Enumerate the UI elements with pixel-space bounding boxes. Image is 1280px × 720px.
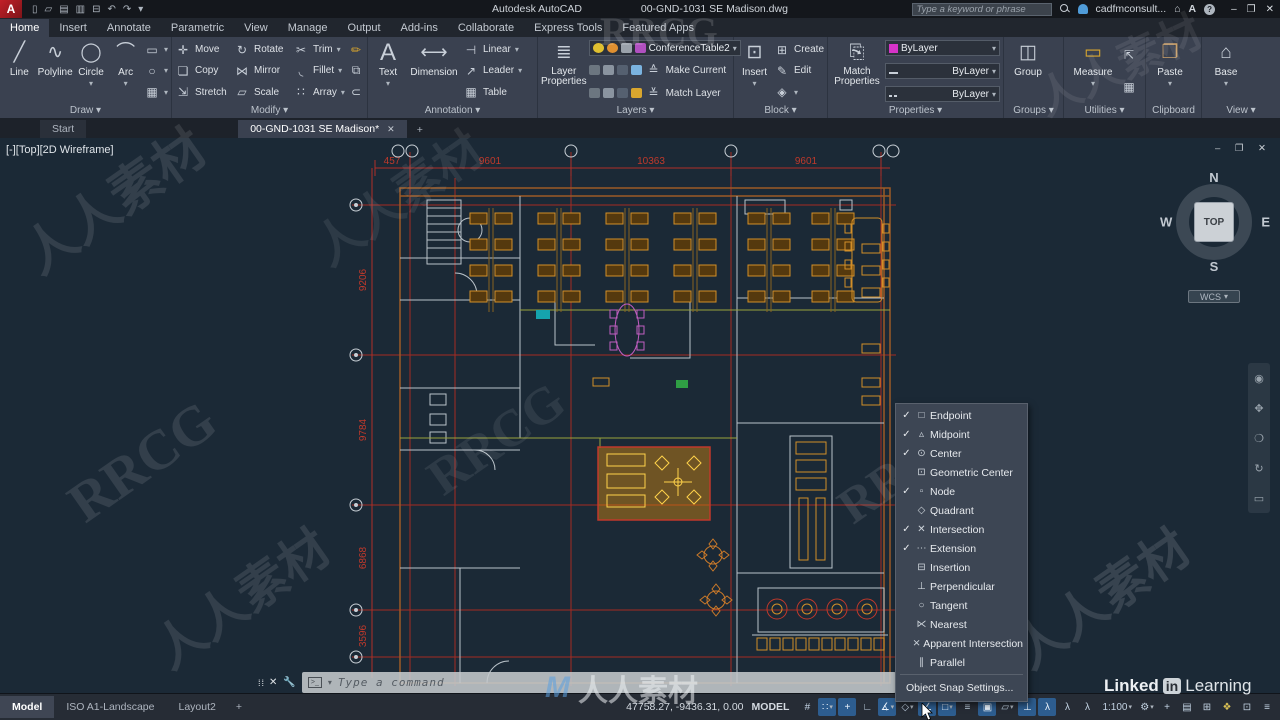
group-button[interactable]: ◫Group — [1007, 39, 1049, 103]
rotate-button[interactable]: ↻Rotate — [234, 41, 287, 59]
paste-button[interactable]: ❐Paste▾ — [1149, 39, 1191, 103]
panel-annotation-title[interactable]: Annotation ▾ — [368, 103, 537, 118]
tab-parametric[interactable]: Parametric — [161, 19, 234, 37]
command-customize-icon[interactable]: 🔧 — [283, 677, 295, 688]
tangent-icon: ○ — [913, 600, 930, 611]
help-icon[interactable]: ? — [1204, 4, 1215, 15]
svg-text:457: 457 — [384, 156, 401, 167]
command-grip[interactable]: ⁞⁞ — [258, 678, 265, 688]
osnap-item-intersection[interactable]: ✓✕Intersection — [896, 520, 1027, 539]
lineweight-select[interactable]: ByLayer▾ — [885, 63, 1000, 79]
layout-tab-iso-a1[interactable]: ISO A1-Landscape — [54, 696, 166, 718]
file-tab-add-button[interactable]: + — [409, 122, 431, 138]
highlighted-room — [598, 447, 710, 520]
menu-separator — [900, 674, 1023, 675]
scale-icon: ▱ — [234, 85, 250, 99]
copy-button[interactable]: ❏Copy — [175, 62, 228, 80]
layer-color-swatch — [635, 43, 646, 53]
osnap-item-apparent-intersection[interactable]: ⨯Apparent Intersection — [896, 634, 1027, 653]
edit-block-button[interactable]: ✎Edit — [774, 62, 824, 80]
panel-clipboard-title: Clipboard — [1146, 103, 1201, 118]
quick-access-toolbar: ▯ ▱ ▤ ▥ ⊟ ↶ ↷ ▾ — [32, 4, 143, 15]
match-layer-icon: ≚ — [646, 86, 662, 100]
create-block-icon: ⊞ — [774, 43, 790, 57]
linear-icon: ⊣ — [463, 43, 479, 57]
canvas-window-buttons[interactable]: – ❐ ✕ — [1215, 143, 1272, 154]
geometric-center-icon: ⊡ — [913, 467, 930, 478]
explode-icon: ⧉ — [348, 63, 364, 78]
osnap-item-perpendicular[interactable]: ⊥Perpendicular — [896, 577, 1027, 596]
cart-icon[interactable]: ⌂ — [1174, 3, 1180, 15]
small-table — [593, 378, 609, 386]
document-title: 00-GND-1031 SE Madison.dwg — [641, 3, 788, 15]
array-button[interactable]: ∷Array▾ — [293, 83, 346, 101]
group-icon: ◫ — [1019, 41, 1037, 67]
line-icon: ╱ — [14, 41, 25, 67]
layout-tab-model[interactable]: Model — [0, 696, 54, 718]
ribbon: ╱Line ∿Polyline ◯Circle▾ ⌒Arc▾ ▭▾ ○▾ ▦▾ … — [0, 37, 1280, 118]
panel-properties: ⎘Match Properties ByLayer▾ ByLayer▾ ByLa… — [828, 37, 1004, 118]
layout-tab-layout2[interactable]: Layout2 — [167, 696, 228, 718]
osnap-item-midpoint[interactable]: ✓▵Midpoint — [896, 425, 1027, 444]
viewcube-east[interactable]: E — [1261, 215, 1270, 230]
snap-toggle[interactable]: ∷▾ — [818, 698, 836, 716]
command-close-icon[interactable]: ✕ — [269, 677, 277, 688]
full-navigation-wheel-icon[interactable]: ◉ — [1254, 372, 1264, 385]
match-properties-button[interactable]: ⎘Match Properties — [831, 39, 883, 103]
panel-draw: ╱Line ∿Polyline ◯Circle▾ ⌒Arc▾ ▭▾ ○▾ ▦▾ … — [0, 37, 172, 118]
cyan-fixture — [536, 310, 550, 319]
zoom-icon[interactable]: ❍ — [1254, 432, 1264, 445]
desk-clusters — [470, 208, 854, 312]
panel-modify-title[interactable]: Modify ▾ — [172, 103, 367, 118]
autoscale-toggle[interactable]: λ — [1058, 698, 1076, 716]
tab-collaborate[interactable]: Collaborate — [448, 19, 524, 37]
tab-view[interactable]: View — [234, 19, 278, 37]
customization-button[interactable]: ≡ — [1258, 698, 1276, 716]
viewcube-south[interactable]: S — [1210, 259, 1219, 274]
autocad-window: A ▯ ▱ ▤ ▥ ⊟ ↶ ↷ ▾ Autodesk AutoCAD 00-GN… — [0, 0, 1280, 720]
isolate-objects-button[interactable]: ❖ — [1218, 698, 1236, 716]
osnap-item-extension[interactable]: ✓⋯Extension — [896, 539, 1027, 558]
workspace-switching-button[interactable]: ⚙▾ — [1138, 698, 1156, 716]
endpoint-icon: □ — [913, 410, 930, 421]
insert-block-icon: ⊡ — [747, 41, 763, 67]
panel-layers-title[interactable]: Layers ▾ — [538, 103, 733, 118]
quadrant-icon: ◇ — [913, 505, 930, 516]
grid-toggle[interactable]: # — [798, 698, 816, 716]
match-properties-icon: ⎘ — [849, 41, 864, 67]
minimize-button[interactable]: – — [1231, 4, 1237, 15]
cafe-tables — [767, 599, 877, 619]
ribbon-tab-row: Home Insert Annotate Parametric View Man… — [0, 18, 1280, 37]
search-icon[interactable] — [1060, 4, 1070, 14]
panel-block: ⊡Insert▾ ⊞Create ✎Edit ◈▾ Block ▾ — [734, 37, 828, 118]
panel-annotation: AText▾ ⟷Dimension ⊣Linear▾ ↗Leader▾ ▦Tab… — [368, 37, 538, 118]
svg-text:10363: 10363 — [637, 156, 665, 167]
panel-block-title[interactable]: Block ▾ — [734, 103, 827, 118]
corridor-walls — [400, 310, 890, 448]
search-input[interactable]: Type a keyword or phrase — [912, 3, 1052, 16]
parallel-icon: ∥ — [913, 657, 930, 668]
ellipse-icon: ○ — [144, 64, 160, 78]
dimension-button[interactable]: ⟷Dimension — [407, 39, 461, 103]
osnap-item-endpoint[interactable]: ✓□Endpoint — [896, 406, 1027, 425]
array-icon: ∷ — [293, 85, 309, 99]
ortho-toggle[interactable]: ∟ — [858, 698, 876, 716]
mirror-icon: ⋈ — [234, 64, 250, 78]
linetype-select[interactable]: ByLayer▾ — [885, 86, 1000, 102]
circle-icon: ◯ — [80, 41, 101, 67]
svg-text:9601: 9601 — [479, 156, 502, 167]
object-snap-menu: ✓□Endpoint ✓▵Midpoint ✓⊙Center ⊡Geometri… — [895, 403, 1028, 702]
trim-button[interactable]: ✂Trim▾ — [293, 41, 346, 59]
qat-customize-icon[interactable]: ▾ — [138, 4, 143, 15]
tab-annotate[interactable]: Annotate — [97, 19, 161, 37]
osnap-item-node[interactable]: ✓▫Node — [896, 482, 1027, 501]
osnap-item-insertion[interactable]: ⊟Insertion — [896, 558, 1027, 577]
account-name[interactable]: cadfmconsult... — [1096, 3, 1167, 15]
file-tab-close-icon[interactable]: ✕ — [387, 124, 395, 135]
coordinates-readout: 47758.27, -9436.31, 0.00 — [626, 701, 743, 713]
tab-output[interactable]: Output — [338, 19, 391, 37]
polyline-icon: ∿ — [47, 41, 63, 67]
navigation-bar[interactable]: ◉ ✥ ❍ ↻ ▭ — [1248, 363, 1270, 513]
trim-icon: ✂ — [293, 43, 309, 57]
lineweight-icon — [889, 72, 898, 74]
svg-text:3596: 3596 — [358, 624, 369, 647]
round-table — [697, 539, 729, 571]
fillet-icon: ◟ — [293, 64, 309, 78]
stretch-icon: ⇲ — [175, 85, 191, 99]
text-icon: A — [380, 41, 396, 67]
panel-draw-title[interactable]: Draw ▾ — [0, 103, 171, 118]
osnap-item-nearest[interactable]: ⋉Nearest — [896, 615, 1027, 634]
quick-calc-button[interactable]: ▦ — [1121, 78, 1137, 96]
autodesk-a-icon[interactable]: A — [1188, 3, 1196, 15]
floorplan-drawing: 457 9601 10363 9601 9206 9784 6868 3596 — [0, 138, 1280, 693]
arc-icon: ⌒ — [116, 41, 135, 67]
erase-icon: ✏ — [348, 43, 364, 57]
seat-strip — [752, 635, 888, 650]
move-button[interactable]: ✛Move — [175, 41, 228, 59]
explode-button[interactable]: ⧉ — [348, 62, 364, 80]
osnap-item-parallel[interactable]: ∥Parallel — [896, 653, 1027, 672]
rectangle-icon: ▭ — [144, 43, 160, 57]
title-bar: A ▯ ▱ ▤ ▥ ⊟ ↶ ↷ ▾ Autodesk AutoCAD 00-GN… — [0, 0, 1280, 18]
command-input[interactable]: >_ ▾ Type a command — [302, 672, 896, 693]
center-icon: ⊙ — [913, 448, 930, 459]
tab-home[interactable]: Home — [0, 19, 49, 37]
arc-button[interactable]: ⌒Arc▾ — [109, 39, 142, 103]
osnap-item-tangent[interactable]: ○Tangent — [896, 596, 1027, 615]
extension-icon: ⋯ — [913, 543, 930, 554]
tab-addins[interactable]: Add-ins — [391, 19, 448, 37]
node-icon: ▫ — [913, 486, 930, 497]
clean-screen-button[interactable]: ⊡ — [1238, 698, 1256, 716]
quick-properties-toggle[interactable]: + — [1158, 698, 1176, 716]
layer-lock-icon — [621, 43, 632, 53]
status-bar: Model ISO A1-Landscape Layout2 + 47758.2… — [0, 693, 1280, 720]
units-button[interactable]: ⊞ — [1198, 698, 1216, 716]
insert-block-button[interactable]: ⊡Insert▾ — [737, 39, 772, 103]
text-button[interactable]: AText▾ — [371, 39, 405, 103]
intersection-icon: ✕ — [913, 524, 930, 535]
user-avatar-icon — [1078, 4, 1088, 14]
osnap-item-center[interactable]: ✓⊙Center — [896, 444, 1027, 463]
tab-manage[interactable]: Manage — [278, 19, 338, 37]
viewcube[interactable]: N S E W TOP — [1166, 174, 1262, 270]
plot-icon[interactable]: ⊟ — [92, 4, 100, 15]
tab-insert[interactable]: Insert — [49, 19, 97, 37]
fillet-button[interactable]: ◟Fillet▾ — [293, 62, 346, 80]
undo-icon[interactable]: ↶ — [108, 4, 116, 15]
layer-properties-icon: ≣ — [556, 41, 572, 67]
midpoint-icon: ▵ — [913, 429, 930, 440]
command-line[interactable]: ⁞⁞ ✕ 🔧 >_ ▾ Type a command — [258, 672, 896, 693]
command-prompt-icon: >_ — [308, 677, 322, 688]
panel-view-title[interactable]: View ▾ — [1202, 103, 1280, 118]
rotate-icon: ↻ — [234, 43, 250, 57]
table-icon: ▦ — [463, 85, 479, 99]
measure-button[interactable]: ▭Measure▾ — [1067, 39, 1119, 103]
layer-on-icon — [593, 43, 604, 53]
hatch-button[interactable]: ▦▾ — [144, 83, 168, 101]
current-layer-name: ConferenceTable2 — [649, 43, 730, 54]
leader-icon: ↗ — [463, 64, 479, 78]
model-space-indicator[interactable]: MODEL — [752, 701, 790, 713]
autocad-logo-icon[interactable]: A — [0, 0, 22, 18]
panel-utilities-title[interactable]: Utilities ▾ — [1064, 103, 1145, 118]
paste-icon: ❐ — [1161, 41, 1178, 67]
block-attributes-icon: ◈ — [774, 85, 790, 99]
save-as-icon[interactable]: ▥ — [76, 4, 85, 15]
mirror-button[interactable]: ⋈Mirror — [234, 62, 287, 80]
make-current-button[interactable]: ≙Make Current — [589, 61, 741, 79]
hatch-icon: ▦ — [144, 85, 160, 99]
edit-block-icon: ✎ — [774, 64, 790, 78]
file-tab-start[interactable]: Start — [40, 120, 86, 138]
round-table — [700, 584, 732, 616]
svg-text:9206: 9206 — [358, 268, 369, 291]
panel-groups-title[interactable]: Groups ▾ — [1004, 103, 1063, 118]
rectangle-button[interactable]: ▭▾ — [144, 41, 168, 59]
viewcube-west[interactable]: W — [1160, 215, 1172, 230]
nearest-icon: ⋉ — [913, 619, 930, 630]
leader-button[interactable]: ↗Leader▾ — [463, 62, 522, 80]
orbit-icon[interactable]: ↻ — [1254, 462, 1263, 475]
table-button[interactable]: ▦Table — [463, 83, 522, 101]
layer-select[interactable]: ConferenceTable2 ▾ — [589, 40, 741, 56]
redo-icon[interactable]: ↷ — [123, 4, 131, 15]
viewcube-top-face[interactable]: TOP — [1194, 202, 1234, 242]
offset-button[interactable]: ⊂ — [348, 83, 364, 101]
oval-table — [610, 304, 644, 356]
dynamic-input-toggle[interactable]: + — [838, 698, 856, 716]
svg-text:9784: 9784 — [358, 418, 369, 441]
panel-clipboard: ❐Paste▾ Clipboard — [1146, 37, 1202, 118]
green-fixture — [676, 380, 688, 388]
search-placeholder: Type a keyword or phrase — [917, 4, 1026, 15]
panel-utilities: ▭Measure▾ ⇱ ▦ Utilities ▾ — [1064, 37, 1146, 118]
quick-select-button[interactable]: ⇱ — [1121, 46, 1137, 64]
panel-properties-title[interactable]: Properties ▾ — [828, 103, 1003, 118]
showmotion-icon[interactable]: ▭ — [1254, 492, 1264, 505]
measure-icon: ▭ — [1084, 41, 1102, 67]
polar-tracking-toggle[interactable]: ∡▾ — [878, 698, 896, 716]
layout-tab-add-button[interactable]: + — [228, 696, 250, 718]
object-snap-settings-item[interactable]: Object Snap Settings... — [896, 677, 1027, 699]
open-file-icon[interactable]: ▱ — [45, 4, 53, 15]
base-button[interactable]: ⌂Base▾ — [1205, 39, 1247, 103]
quick-select-icon: ⇱ — [1121, 48, 1137, 62]
polyline-button[interactable]: ∿Polyline — [38, 39, 73, 103]
line-button[interactable]: ╱Line — [3, 39, 36, 103]
save-icon[interactable]: ▤ — [59, 4, 68, 15]
close-button[interactable]: ✕ — [1266, 4, 1274, 15]
scale-button[interactable]: ▱Scale — [234, 83, 287, 101]
ellipse-button[interactable]: ○▾ — [144, 62, 168, 80]
color-swatch — [889, 44, 898, 53]
layer-properties-button[interactable]: ≣Layer Properties — [541, 39, 587, 103]
viewcube-north[interactable]: N — [1209, 170, 1218, 185]
new-file-icon[interactable]: ▯ — [32, 4, 38, 15]
command-placeholder: Type a command — [338, 676, 445, 689]
erase-button[interactable]: ✏ — [348, 41, 364, 59]
linetype-icon — [889, 95, 898, 97]
color-select[interactable]: ByLayer▾ — [885, 40, 1000, 56]
drawing-canvas[interactable]: [-][Top][2D Wireframe] – ❐ ✕ — [0, 138, 1280, 693]
panel-layers: ≣Layer Properties ConferenceTable2 ▾ ≙Ma… — [538, 37, 734, 118]
tab-featured-apps[interactable]: Featured Apps — [612, 19, 704, 37]
restore-button[interactable]: ❐ — [1247, 4, 1256, 15]
offset-icon: ⊂ — [348, 85, 364, 99]
mouse-cursor — [921, 703, 937, 720]
quick-calc-icon: ▦ — [1121, 80, 1137, 94]
annotation-scale-value[interactable]: 1:100▾ — [1098, 698, 1136, 716]
wcs-menu[interactable]: WCS▾ — [1188, 290, 1240, 303]
svg-text:9601: 9601 — [795, 156, 818, 167]
make-current-icon: ≙ — [646, 63, 662, 77]
osnap-item-quadrant[interactable]: ◇Quadrant — [896, 501, 1027, 520]
panel-modify: ✛Move ↻Rotate ✂Trim▾ ❏Copy ⋈Mirror ◟Fill… — [172, 37, 368, 118]
annotation-monitor-button[interactable]: ▤ — [1178, 698, 1196, 716]
file-tab-document[interactable]: 00-GND-1031 SE Madison* ✕ — [238, 120, 407, 138]
circle-button[interactable]: ◯Circle▾ — [75, 39, 108, 103]
annotation-visibility-toggle[interactable]: λ — [1038, 698, 1056, 716]
move-icon: ✛ — [175, 43, 191, 57]
osnap-item-geometric-center[interactable]: ⊡Geometric Center — [896, 463, 1027, 482]
file-tab-bar: Start 00-GND-1031 SE Madison* ✕ + — [0, 118, 1280, 138]
linear-button[interactable]: ⊣Linear▾ — [463, 41, 522, 59]
perpendicular-icon: ⊥ — [913, 581, 930, 592]
base-icon: ⌂ — [1220, 41, 1231, 67]
create-block-button[interactable]: ⊞Create — [774, 41, 824, 59]
panel-groups: ◫Group Groups ▾ — [1004, 37, 1064, 118]
dimension-icon: ⟷ — [420, 41, 447, 67]
pan-icon[interactable]: ✥ — [1254, 402, 1263, 415]
layer-freeze-icon — [607, 43, 618, 53]
annotation-scale-icon[interactable]: λ — [1078, 698, 1096, 716]
stretch-button[interactable]: ⇲Stretch — [175, 83, 228, 101]
apparent-intersection-icon: ⨯ — [910, 638, 923, 649]
tab-express-tools[interactable]: Express Tools — [524, 19, 612, 37]
panel-view: ⌂Base▾ View ▾ — [1202, 37, 1280, 118]
svg-text:6868: 6868 — [358, 546, 369, 569]
app-title: Autodesk AutoCAD — [492, 3, 582, 15]
block-attributes-button[interactable]: ◈▾ — [774, 83, 824, 101]
insertion-icon: ⊟ — [913, 562, 930, 573]
viewport-controls[interactable]: [-][Top][2D Wireframe] — [6, 144, 114, 156]
conference-table — [845, 218, 889, 302]
match-layer-button[interactable]: ≚Match Layer — [589, 84, 741, 102]
copy-icon: ❏ — [175, 64, 191, 78]
